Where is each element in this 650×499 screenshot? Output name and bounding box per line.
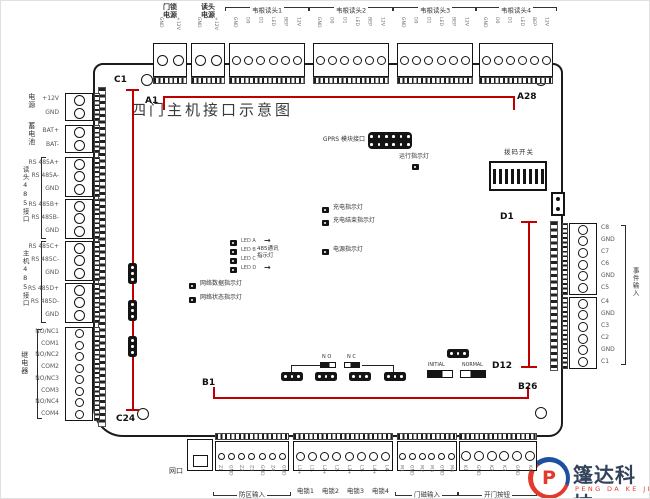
zone-input-connector-pin-label: GND xyxy=(227,465,232,489)
rs485c-terminal-pin-label: RS 485C+ xyxy=(5,244,59,251)
net-port-label: 网口 xyxy=(169,468,183,476)
tick-b1 xyxy=(213,387,215,399)
wiegand-reader-1-connector-pin-label: BEP xyxy=(282,17,287,41)
wiegand-reader-3-connector xyxy=(397,43,473,77)
lock-output-connector-solder-strip xyxy=(293,433,393,440)
lock-output-connector-pin-label: L1- xyxy=(308,465,313,489)
comm-led-1 xyxy=(230,240,237,246)
terminal-pin xyxy=(578,225,588,235)
terminal-pin xyxy=(578,236,588,246)
input-terminal-c1-4-pin-label: GND xyxy=(601,347,627,354)
logo-text-en: PENG DA KE JI xyxy=(575,485,650,493)
config-jumper xyxy=(128,300,137,321)
terminal-pin xyxy=(578,310,588,320)
terminal-pin xyxy=(259,453,266,460)
terminal-pin xyxy=(74,171,85,182)
rs485b-terminal-pin-label: GND xyxy=(5,228,59,235)
power-led xyxy=(322,249,329,255)
terminal-pin xyxy=(244,56,253,65)
terminal-pin xyxy=(369,452,378,461)
terminal-pin xyxy=(74,255,85,266)
exit-button-connector-pin-label: K2 xyxy=(488,465,493,489)
input-terminal-c5-8-pin-label: GND xyxy=(601,273,627,280)
wiegand-reader-1-connector xyxy=(229,43,305,77)
tick-c1 xyxy=(126,89,139,91)
dip-switch xyxy=(489,161,547,191)
terminal-pin xyxy=(449,56,458,65)
wiegand-reader-3-connector-pin-label: LED xyxy=(437,17,442,41)
door-sensor-connector-pin-label: M2 xyxy=(418,465,423,489)
relay-mode-jumper-1 xyxy=(281,372,303,381)
terminal-pin xyxy=(499,451,509,461)
initial-label: INITIAL xyxy=(428,363,445,368)
comm-led-group-label-line1: 485通讯 xyxy=(257,246,279,252)
terminal-pin xyxy=(506,56,515,65)
terminal-pin xyxy=(248,453,255,460)
terminal-pin xyxy=(75,387,84,396)
terminal-pin xyxy=(578,345,588,355)
exit-button-connector xyxy=(459,441,537,471)
terminal-pin xyxy=(75,398,84,407)
zone-input-connector-pin-label: GND xyxy=(280,465,285,489)
lock-label-3: 电锁3 xyxy=(343,488,368,495)
relay-output-terminal-solder-strip xyxy=(94,327,100,421)
right-solder-strip xyxy=(562,297,568,369)
net-data-led xyxy=(189,283,196,289)
terminal-pin xyxy=(238,453,245,460)
rs485a-terminal xyxy=(65,157,93,197)
terminal-pin xyxy=(316,56,325,65)
no-jumper-sample xyxy=(320,362,336,368)
marker-d1: D1 xyxy=(500,212,514,222)
terminal-pin xyxy=(328,56,337,65)
lock-output-connector-pin-label: L3- xyxy=(358,465,363,489)
rs485c-terminal-pin-label: GND xyxy=(5,270,59,277)
rs485c-terminal-solder-strip xyxy=(94,241,100,281)
rs485a-terminal-pin-label: RS 485A- xyxy=(5,173,59,180)
net-data-led-label: 网络数据指示灯 xyxy=(200,281,242,288)
wiegand-reader-3-connector-pin-label: 12V xyxy=(463,17,468,41)
terminal-pin xyxy=(74,268,85,279)
zone-input-connector-pin-label: Z2 xyxy=(237,465,242,489)
reader-power-connector-solder-strip xyxy=(191,77,225,84)
annotation-line-d xyxy=(528,221,530,368)
terminal-pin xyxy=(195,55,206,66)
rs485c-terminal-pin-label: RS 485C- xyxy=(5,257,59,264)
terminal-pin xyxy=(211,55,222,66)
comm-led-group-label-line2: 指示灯 xyxy=(257,253,274,259)
reader-power-connector-pin-label: GND xyxy=(196,17,201,41)
relay-output-terminal-pin-label: NO/NC1 xyxy=(5,329,59,336)
logo-text-cn: 篷达科技 xyxy=(573,459,650,499)
terminal-pin xyxy=(74,243,85,254)
wiegand-reader-2-connector xyxy=(313,43,389,77)
comm-led-4 xyxy=(230,267,237,273)
terminal-pin xyxy=(293,56,302,65)
zone-input-connector-pin-label: Z1 xyxy=(216,465,221,489)
charge-led-label: 充电指示灯 xyxy=(333,205,363,212)
dip-switch-label: 拨码开关 xyxy=(504,149,534,156)
battery-terminal xyxy=(65,125,93,153)
terminal-pin xyxy=(75,352,84,361)
wiegand-reader-4-connector-pin-label: GND xyxy=(481,17,486,41)
terminal-pin xyxy=(377,56,386,65)
rs485a-terminal-pin-label: RS 485A+ xyxy=(5,160,59,167)
door-sensor-connector-pin-label: M1 xyxy=(398,465,403,489)
input-terminal-c1-4-pin-label: C4 xyxy=(601,299,627,306)
lock-power-connector-pin-label: GND xyxy=(158,17,163,41)
terminal-pin xyxy=(578,260,588,270)
door-sensor-connector-solder-strip xyxy=(397,433,457,440)
rs485c-terminal xyxy=(65,241,93,281)
wiegand-reader-4-connector-solder-strip xyxy=(479,77,553,84)
terminal-pin xyxy=(578,334,588,344)
terminal-pin xyxy=(74,297,85,308)
terminal-pin xyxy=(424,56,433,65)
terminal-pin xyxy=(279,453,286,460)
door-sensor-connector-pin-label: GND xyxy=(408,465,413,489)
relay-output-terminal xyxy=(65,327,93,421)
exit-button-connector-pin-label: K4 xyxy=(527,465,532,489)
input-terminal-c5-8-pin-label: C6 xyxy=(601,261,627,268)
power-terminal-pin-label: GND xyxy=(5,110,59,117)
marker-a1: A1 xyxy=(145,96,158,106)
reader-power-connector-pin-label: +12V xyxy=(213,17,218,41)
terminal-pin xyxy=(269,56,278,65)
zone-input-connector-solder-strip xyxy=(215,433,289,440)
run-led-label: 运行指示灯 xyxy=(399,154,429,161)
marker-b1: B1 xyxy=(202,378,215,388)
relay-mode-jumper-3 xyxy=(349,372,371,381)
terminal-pin xyxy=(332,452,341,461)
wiegand-reader-3-connector-pin-label: D0 xyxy=(412,17,417,41)
normal-jumper xyxy=(460,370,486,378)
terminal-pin xyxy=(75,410,84,419)
terminal-pin xyxy=(578,299,588,309)
wiegand-reader-3-connector-pin-label: BEP xyxy=(450,17,455,41)
input-terminal-c5-8-pin-label: C7 xyxy=(601,249,627,256)
relay-output-terminal-pin-label: NO/NC3 xyxy=(5,376,59,383)
door-sensor-connector-pin-label: M3 xyxy=(428,465,433,489)
rs485d-terminal-pin-label: GND xyxy=(5,312,59,319)
terminal-pin xyxy=(357,452,366,461)
terminal-pin xyxy=(437,56,446,65)
gprs-module-header xyxy=(368,132,412,149)
terminal-pin xyxy=(232,56,241,65)
wiegand-reader-3-connector-pin-label: D1 xyxy=(425,17,430,41)
zone-input-connector-pin-label: Z3 xyxy=(248,465,253,489)
reader-power-connector xyxy=(191,43,225,77)
terminal-pin xyxy=(74,95,85,106)
terminal-pin xyxy=(381,452,390,461)
wiegand-reader-3-connector-pin-label: GND xyxy=(399,17,404,41)
lock-output-connector-pin-label: L4+ xyxy=(370,465,375,489)
right-solder-strip xyxy=(562,223,568,295)
nc-jumper-label: N C xyxy=(347,355,356,361)
config-jumper xyxy=(128,263,137,284)
comm-led-label-4: LED D xyxy=(241,266,256,272)
terminal-pin xyxy=(281,56,290,65)
marker-b26: B26 xyxy=(518,382,537,392)
zone-input-connector-pin-label: GND xyxy=(259,465,264,489)
input-terminal-c1-4-pin-label: C1 xyxy=(601,359,627,366)
tick-a1 xyxy=(163,96,165,110)
tick-a28 xyxy=(513,96,515,110)
lock-label-4: 电锁4 xyxy=(368,488,393,495)
wiegand-reader-1-connector-solder-strip xyxy=(229,77,305,84)
marker-a28: A28 xyxy=(517,92,537,102)
relay-mode-jumper-4 xyxy=(384,372,406,381)
wiegand-reader-2-connector-pin-label: LED xyxy=(353,17,358,41)
terminal-pin xyxy=(75,329,84,338)
terminal-pin xyxy=(400,56,409,65)
terminal-pin xyxy=(308,452,317,461)
jumper-bracket-right xyxy=(362,365,394,372)
net-status-led xyxy=(189,297,196,303)
right-pin-header-strip xyxy=(550,221,558,371)
battery-terminal-solder-strip xyxy=(94,125,100,153)
terminal-pin xyxy=(173,55,184,66)
marker-d12: D12 xyxy=(492,361,512,371)
terminal-pin xyxy=(494,56,503,65)
power-terminal xyxy=(65,93,93,121)
exit-button-connector-solder-strip xyxy=(459,433,537,440)
reset-jumper xyxy=(551,192,565,216)
rs485d-terminal-pin-label: RS 485D- xyxy=(5,299,59,306)
rs485d-terminal xyxy=(65,283,93,323)
terminal-pin xyxy=(578,283,588,293)
annotation-line-c xyxy=(132,89,134,411)
power-terminal-pin-label: +12V xyxy=(5,96,59,103)
terminal-pin xyxy=(74,127,85,138)
no-jumper-label: N O xyxy=(322,355,331,361)
battery-terminal-pin-label: BAT+ xyxy=(5,128,59,135)
jumper-bracket-left xyxy=(291,365,320,372)
terminal-pin xyxy=(320,452,329,461)
wiegand-reader-4-connector xyxy=(479,43,553,77)
terminal-pin xyxy=(75,341,84,350)
charge-done-led-label: 充电结束指示灯 xyxy=(333,218,375,225)
terminal-pin xyxy=(74,140,85,151)
relay-output-terminal-pin-label: NO/NC4 xyxy=(5,399,59,406)
terminal-pin xyxy=(74,201,85,212)
rs485b-terminal xyxy=(65,199,93,239)
terminal-pin xyxy=(157,55,168,66)
terminal-pin xyxy=(578,357,588,367)
tick-d1 xyxy=(521,221,537,223)
relay-output-terminal-pin-label: COM1 xyxy=(5,341,59,348)
charge-led xyxy=(322,207,329,213)
wiegand-reader-1-connector-pin-label: D1 xyxy=(257,17,262,41)
wiegand-reader-3-connector-label: 韦根读头3 xyxy=(393,7,477,17)
lock-label-1: 电锁1 xyxy=(293,488,318,495)
terminal-pin xyxy=(74,285,85,296)
terminal-pin xyxy=(578,248,588,258)
comm-led-label-2: LED B xyxy=(241,248,256,254)
terminal-pin xyxy=(461,56,470,65)
relay-output-terminal-pin-label: COM4 xyxy=(5,411,59,418)
gprs-label: GPRS 模块接口 xyxy=(313,137,365,144)
bracket-right-inputs xyxy=(621,225,626,365)
power-led-label: 电源指示灯 xyxy=(333,247,363,254)
wiegand-reader-3-connector-solder-strip xyxy=(397,77,473,84)
power-terminal-solder-strip xyxy=(94,93,100,121)
terminal-pin xyxy=(365,56,374,65)
rs485d-terminal-pin-label: RS 485D+ xyxy=(5,286,59,293)
input-terminal-c1-4-pin-label: GND xyxy=(601,311,627,318)
wiegand-reader-4-connector-label: 韦根读头4 xyxy=(475,7,557,17)
terminal-pin xyxy=(75,375,84,384)
relay-mode-jumper-2 xyxy=(315,372,337,381)
net-port-connector xyxy=(187,439,213,471)
wiegand-reader-4-connector-pin-label: LED xyxy=(518,17,523,41)
marker-c1: C1 xyxy=(114,75,127,85)
lock-output-connector-pin-label: L3+ xyxy=(345,465,350,489)
config-jumper xyxy=(128,336,137,357)
comm-led-label-3: LED C xyxy=(241,257,256,263)
rs485b-terminal-solder-strip xyxy=(94,199,100,239)
wiegand-reader-2-connector-label: 韦根读头2 xyxy=(309,7,393,17)
terminal-pin xyxy=(482,56,491,65)
lock-label-2: 电锁2 xyxy=(318,488,343,495)
screw-hole xyxy=(535,407,547,419)
mode-jumper xyxy=(447,349,469,358)
wiegand-reader-4-connector-pin-label: D0 xyxy=(494,17,499,41)
lock-power-connector xyxy=(153,43,187,77)
terminal-pin xyxy=(525,451,535,461)
terminal-pin xyxy=(345,452,354,461)
terminal-pin xyxy=(256,56,265,65)
terminal-pin xyxy=(296,452,305,461)
lock-output-connector-pin-label: L2+ xyxy=(320,465,325,489)
comm-led-2 xyxy=(230,249,237,255)
rs485d-terminal-solder-strip xyxy=(94,283,100,323)
input-terminal-c5-8-pin-label: C8 xyxy=(601,225,627,232)
exit-button-connector-pin-label: K1 xyxy=(462,465,467,489)
terminal-pin xyxy=(438,453,445,460)
door-sensor-connector-pin-label: GND xyxy=(438,465,443,489)
reader-power-connector-label: 读头电源 xyxy=(188,4,228,19)
tick-c24 xyxy=(126,409,139,411)
wiegand-reader-4-connector-pin-label: D1 xyxy=(506,17,511,41)
terminal-pin xyxy=(487,451,497,461)
wiegand-reader-4-connector-pin-label: BEP xyxy=(531,17,536,41)
terminal-pin xyxy=(74,226,85,237)
terminal-pin xyxy=(218,453,225,460)
input-terminal-c1-4-pin-label: C2 xyxy=(601,335,627,342)
wiegand-reader-2-connector-pin-label: 12V xyxy=(379,17,384,41)
input-terminal-c1-4-pin-label: C3 xyxy=(601,323,627,330)
exit-button-connector-pin-label: K3 xyxy=(501,465,506,489)
wiegand-reader-4-connector-pin-label: 12V xyxy=(543,17,548,41)
wiegand-reader-1-connector-pin-label: GND xyxy=(231,17,236,41)
terminal-pin xyxy=(74,184,85,195)
run-led xyxy=(412,164,419,170)
terminal-pin xyxy=(399,453,406,460)
arrow-right-icon: → xyxy=(264,237,271,246)
zone-input-connector-pin-label: Z4 xyxy=(269,465,274,489)
terminal-pin xyxy=(461,451,471,461)
terminal-pin xyxy=(419,453,426,460)
relay-output-terminal-pin-label: NO/NC2 xyxy=(5,352,59,359)
terminal-pin xyxy=(578,271,588,281)
terminal-pin xyxy=(412,56,421,65)
relay-output-terminal-pin-label: COM3 xyxy=(5,388,59,395)
input-terminal-c5-8 xyxy=(569,223,597,295)
terminal-pin xyxy=(409,453,416,460)
wiegand-reader-1-connector-label: 韦根读头1 xyxy=(225,7,309,17)
wiegand-reader-1-connector-pin-label: LED xyxy=(269,17,274,41)
charge-done-led xyxy=(322,220,329,226)
annotation-line-b xyxy=(213,397,529,399)
input-terminal-c5-8-pin-label: GND xyxy=(601,237,627,244)
input-terminal-c1-4 xyxy=(569,297,597,369)
exit-button-label: 开门按钮 xyxy=(457,486,537,496)
terminal-pin xyxy=(530,56,539,65)
terminal-pin xyxy=(74,159,85,170)
terminal-pin xyxy=(578,322,588,332)
terminal-pin xyxy=(74,310,85,321)
right-group-label: 事件输入 xyxy=(631,267,638,297)
rs485b-terminal-pin-label: RS 485B+ xyxy=(5,202,59,209)
terminal-pin xyxy=(228,453,235,460)
terminal-pin xyxy=(74,108,85,119)
exit-button-connector-pin-label: GND xyxy=(514,465,519,489)
wiegand-reader-1-connector-pin-label: D0 xyxy=(244,17,249,41)
input-terminal-c5-8-pin-label: C5 xyxy=(601,285,627,292)
wiegand-reader-2-connector-solder-strip xyxy=(313,77,389,84)
terminal-pin xyxy=(518,56,527,65)
terminal-pin xyxy=(340,56,349,65)
net-status-led-label: 网络状态指示灯 xyxy=(200,295,242,302)
wiegand-reader-2-connector-pin-label: BEP xyxy=(366,17,371,41)
relay-output-terminal-pin-label: COM2 xyxy=(5,364,59,371)
comm-led-label-1: LED A xyxy=(241,239,256,245)
terminal-pin xyxy=(269,453,276,460)
nc-jumper-sample xyxy=(344,362,360,368)
comm-led-3 xyxy=(230,258,237,264)
lock-output-connector-pin-label: L1+ xyxy=(295,465,300,489)
lock-output-connector-pin-label: L4- xyxy=(383,465,388,489)
wiegand-reader-2-connector-pin-label: D0 xyxy=(328,17,333,41)
battery-terminal-pin-label: BAT- xyxy=(5,142,59,149)
normal-label: NORMAL xyxy=(462,363,483,368)
door-sensor-connector-pin-label: M4 xyxy=(448,465,453,489)
arrow-right-icon: → xyxy=(264,264,271,273)
wiegand-reader-2-connector-pin-label: GND xyxy=(315,17,320,41)
terminal-pin xyxy=(512,451,522,461)
board-diagram: 四门主机接口示意图 A1 A28 C1 C24 D1 D12 B1 B26 GP… xyxy=(0,0,650,499)
terminal-pin xyxy=(542,56,551,65)
wiegand-reader-2-connector-pin-label: D1 xyxy=(341,17,346,41)
annotation-line-a xyxy=(163,96,515,98)
lock-power-connector-pin-label: +12V xyxy=(175,17,180,41)
screw-hole xyxy=(141,74,153,86)
terminal-pin xyxy=(75,364,84,373)
terminal-pin xyxy=(353,56,362,65)
terminal-pin xyxy=(448,453,455,460)
terminal-pin xyxy=(428,453,435,460)
lock-power-connector-label: 门锁电源 xyxy=(150,4,190,19)
initial-jumper xyxy=(427,370,453,378)
wiegand-reader-1-connector-pin-label: 12V xyxy=(295,17,300,41)
marker-c24: C24 xyxy=(116,414,135,424)
terminal-pin xyxy=(474,451,484,461)
terminal-pin xyxy=(74,213,85,224)
exit-button-connector-pin-label: GND xyxy=(475,465,480,489)
rs485b-terminal-pin-label: RS 485B- xyxy=(5,215,59,222)
tick-d12 xyxy=(521,366,537,368)
